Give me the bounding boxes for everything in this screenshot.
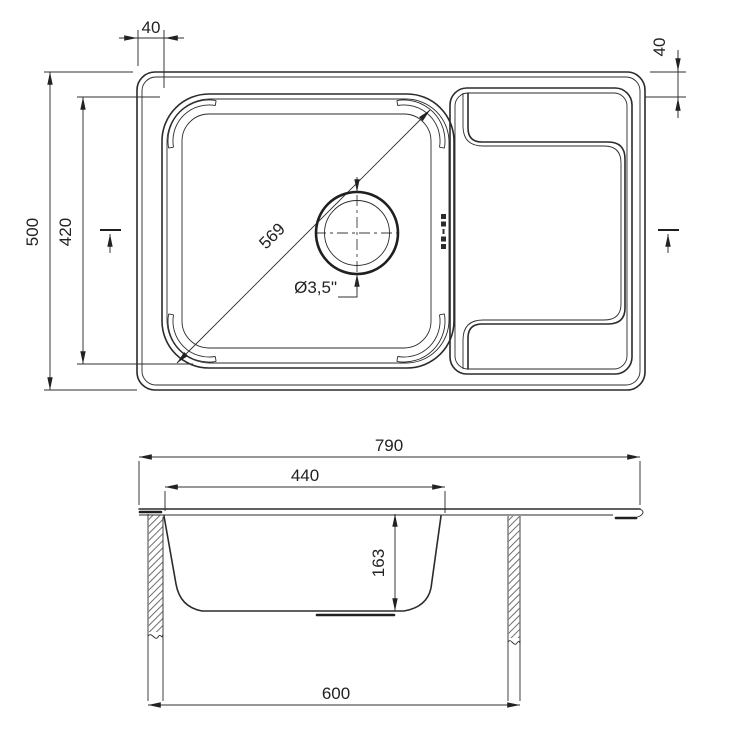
section-view: 790 440 163 600 — [139, 436, 643, 705]
dim-overall-width-label: 790 — [375, 436, 403, 455]
hatch-right — [509, 516, 520, 638]
break-line-left — [148, 634, 163, 638]
dim-flange-top-label: 40 — [142, 18, 161, 37]
dim-bowl-depth-label: 163 — [369, 549, 388, 577]
dim-overall-width: 790 — [139, 436, 640, 505]
sink-rim-inner-edge — [142, 77, 640, 385]
bowl-corner-band-top-right — [397, 100, 445, 148]
sink-outline — [137, 72, 645, 390]
drainer-surface-inner — [463, 93, 621, 369]
datum-mark-left — [100, 230, 121, 253]
dim-cabinet-width: 600 — [148, 684, 520, 705]
dim-flange-right-label: 40 — [650, 38, 669, 57]
dim-bowl-width: 440 — [165, 466, 445, 513]
dim-bowl-diagonal-label: 569 — [255, 219, 288, 252]
bowl-rim-inner — [167, 99, 449, 363]
dim-drain-label: Ø3,5" — [294, 278, 337, 297]
drawing-svg: 569 Ø3,5" — [0, 0, 739, 734]
drainer-rim-outer — [450, 88, 632, 374]
bowl-corner-band-bottom-left — [168, 314, 216, 362]
dim-flange-right: 40 — [645, 38, 686, 118]
datum-mark-right — [658, 230, 679, 253]
drainer-rim-inner — [455, 93, 627, 369]
drainer-surface-outer — [468, 93, 625, 369]
bowl-corner-band-bottom-right — [397, 314, 445, 362]
cabinet-wall-left — [148, 514, 163, 701]
cabinet-wall-right — [508, 516, 520, 701]
dim-overall-depth-label: 500 — [23, 218, 42, 246]
break-line-right — [508, 640, 520, 644]
bowl-rim-outer — [162, 94, 454, 368]
bowl-floor — [182, 114, 431, 348]
sink-technical-drawing: 569 Ø3,5" — [0, 0, 739, 734]
dim-bowl-inner-depth: 420 — [56, 97, 193, 364]
bowl-profile — [164, 516, 441, 611]
flange-right-end — [635, 509, 643, 518]
top-view: 569 Ø3,5" — [23, 18, 686, 390]
bowl-corner-band-top-left — [168, 100, 216, 148]
brand-mark-icon — [441, 214, 446, 249]
drain-dim-leader — [338, 274, 357, 297]
dim-bowl-inner-depth-label: 420 — [56, 218, 75, 246]
hatch-left — [149, 515, 163, 632]
dim-bowl-depth: 163 — [369, 514, 395, 611]
dim-bowl-width-label: 440 — [291, 466, 319, 485]
diagonal-dim-line — [177, 110, 430, 363]
dim-cabinet-width-label: 600 — [322, 684, 350, 703]
